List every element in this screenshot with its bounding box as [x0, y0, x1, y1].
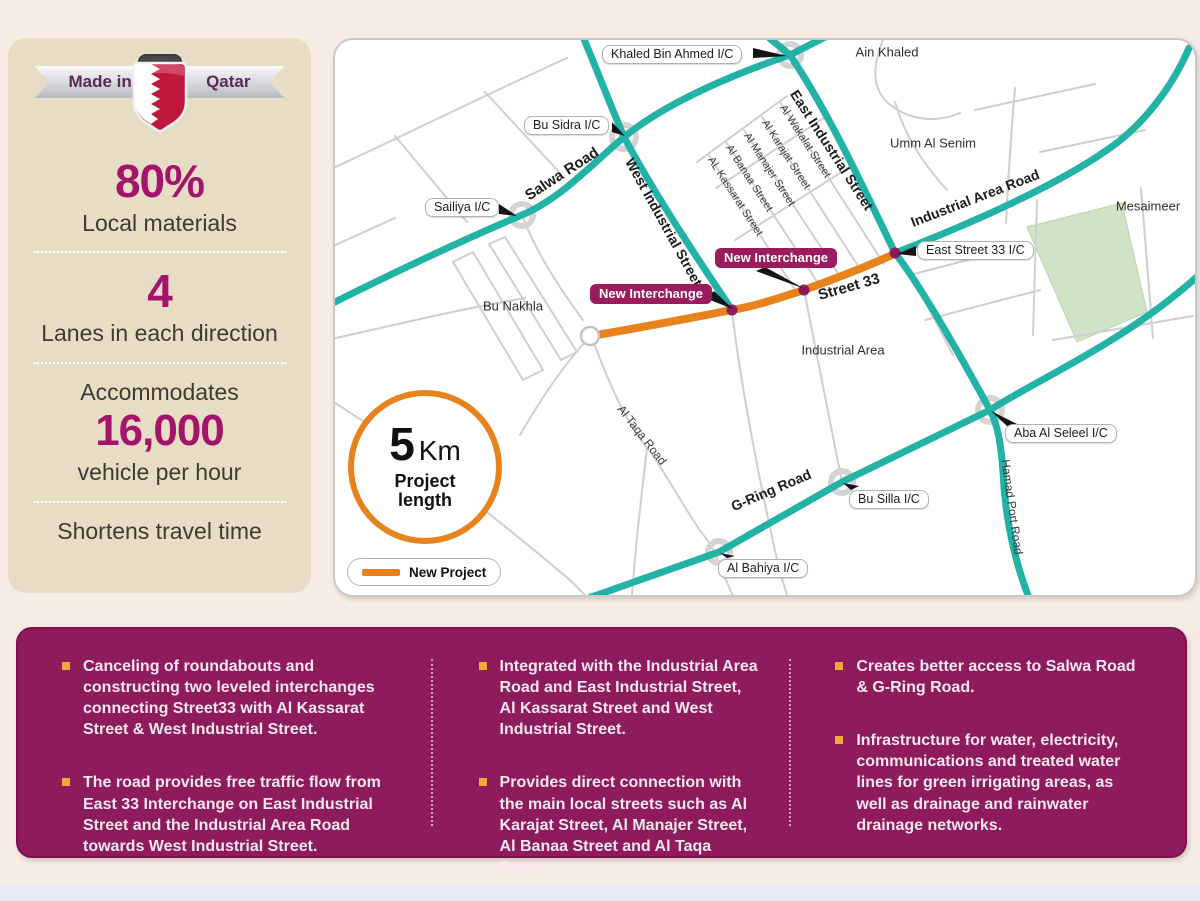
list-item: Integrated with the Industrial Area Road… [479, 656, 760, 740]
area-label-ain-khaled: Ain Khaled [856, 45, 919, 60]
list-item: Canceling of roundabouts and constructin… [62, 656, 395, 740]
detail-text: Canceling of roundabouts and constructin… [83, 656, 395, 740]
made-in-qatar-badge: Made in Qatar [35, 54, 285, 138]
qatar-flag-shield-icon [127, 54, 193, 143]
legend-label: New Project [409, 565, 486, 580]
bullet-square-icon [479, 662, 487, 670]
ic-label-bu-sidra: Bu Sidra I/C [524, 116, 609, 135]
ic-label-bu-silla: Bu Silla I/C [849, 490, 929, 509]
dotted-divider [34, 251, 286, 253]
ribbon-right-text: Qatar [206, 72, 250, 92]
area-label-industrial-area: Industrial Area [801, 343, 884, 358]
details-column-1: Canceling of roundabouts and constructin… [18, 629, 431, 856]
ic-label-sailiya: Sailiya I/C [425, 198, 499, 217]
map-legend: New Project [347, 558, 501, 586]
bottom-page-strip [0, 884, 1200, 901]
stat-local-materials-value: 80% [8, 158, 311, 204]
stat-capacity-value: 16,000 [8, 409, 311, 453]
detail-text: Infrastructure for water, electricity, c… [856, 730, 1139, 836]
ic-label-al-bahiya: Al Bahiya I/C [718, 559, 808, 578]
list-item: Creates better access to Salwa Road & G-… [835, 656, 1139, 698]
stat-capacity-pre: Accommodates [8, 379, 311, 405]
bullet-square-icon [62, 778, 70, 786]
project-map: Khaled Bin Ahmed I/C Bu Sidra I/C Sailiy… [333, 38, 1197, 597]
bullet-square-icon [835, 662, 843, 670]
new-interchange-badge-east: New Interchange [715, 248, 837, 268]
list-item: The road provides free traffic flow from… [62, 772, 395, 856]
dotted-divider [34, 362, 286, 364]
ribbon-left-text: Made in [69, 72, 132, 92]
dotted-divider [34, 501, 286, 503]
bullet-square-icon [835, 736, 843, 744]
details-column-2: Integrated with the Industrial Area Road… [433, 629, 790, 856]
list-item: Infrastructure for water, electricity, c… [835, 730, 1139, 836]
stats-sidebar: Made in Qatar 80% Local materials 4 Lane… [8, 38, 311, 593]
area-label-bu-nakhla: Bu Nakhla [483, 299, 543, 314]
stat-lanes-value: 4 [8, 268, 311, 314]
stat-travel-time-label: Shortens travel time [8, 518, 311, 544]
stat-lanes-label: Lanes in each direction [8, 320, 311, 346]
details-column-3: Creates better access to Salwa Road & G-… [791, 629, 1185, 856]
bullet-square-icon [479, 778, 487, 786]
new-interchange-badge-west: New Interchange [590, 284, 712, 304]
detail-text: Integrated with the Industrial Area Road… [500, 656, 760, 740]
project-length-value: 5 [389, 424, 415, 465]
stat-local-materials-label: Local materials [8, 210, 311, 236]
stat-capacity-label: vehicle per hour [8, 459, 311, 485]
ic-label-khaled-bin-ahmed: Khaled Bin Ahmed I/C [602, 45, 742, 64]
detail-text: Creates better access to Salwa Road & G-… [856, 656, 1139, 698]
area-label-umm-al-senim: Umm Al Senim [890, 136, 976, 151]
list-item: Provides direct connection with the main… [479, 772, 760, 878]
detail-text: Provides direct connection with the main… [500, 772, 760, 878]
detail-text: The road provides free traffic flow from… [83, 772, 395, 856]
new-project-line-swatch [362, 569, 400, 576]
project-length-caption: Project length [385, 472, 465, 510]
project-details-panel: Canceling of roundabouts and constructin… [16, 627, 1187, 858]
bullet-square-icon [62, 662, 70, 670]
project-length-unit: Km [419, 435, 461, 467]
ic-label-aba-al-seleel: Aba Al Seleel I/C [1005, 424, 1117, 443]
project-length-circle: 5 Km Project length [348, 390, 502, 544]
ic-label-east-street-33: East Street 33 I/C [917, 241, 1034, 260]
area-label-mesaimeer: Mesaimeer [1116, 199, 1180, 214]
